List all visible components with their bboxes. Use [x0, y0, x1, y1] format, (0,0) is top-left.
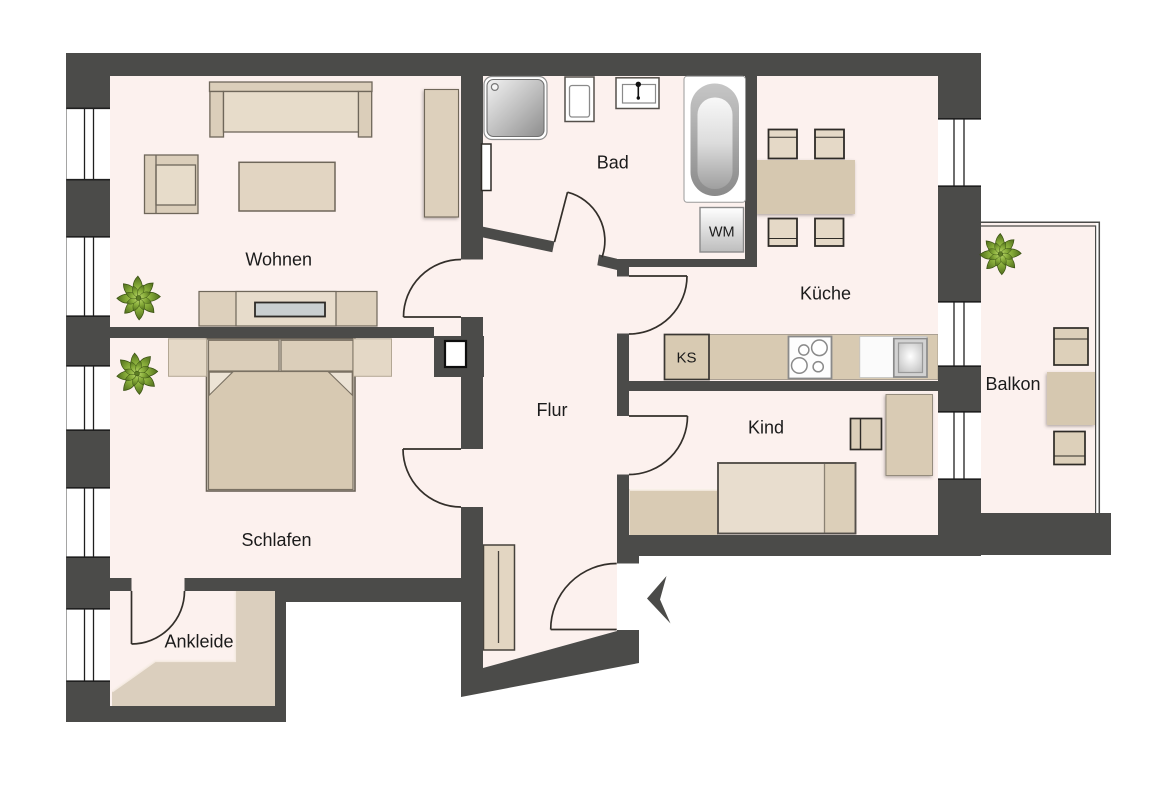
svg-text:Schlafen: Schlafen	[241, 530, 311, 550]
svg-text:Ankleide: Ankleide	[164, 631, 233, 651]
svg-text:WM: WM	[709, 225, 735, 241]
svg-text:Küche: Küche	[800, 283, 851, 303]
svg-text:Wohnen: Wohnen	[245, 249, 312, 269]
svg-text:KS: KS	[676, 350, 696, 367]
svg-text:Balkon: Balkon	[985, 374, 1040, 394]
svg-text:Kind: Kind	[748, 417, 784, 437]
svg-text:Bad: Bad	[597, 153, 629, 173]
svg-text:Flur: Flur	[537, 400, 568, 420]
